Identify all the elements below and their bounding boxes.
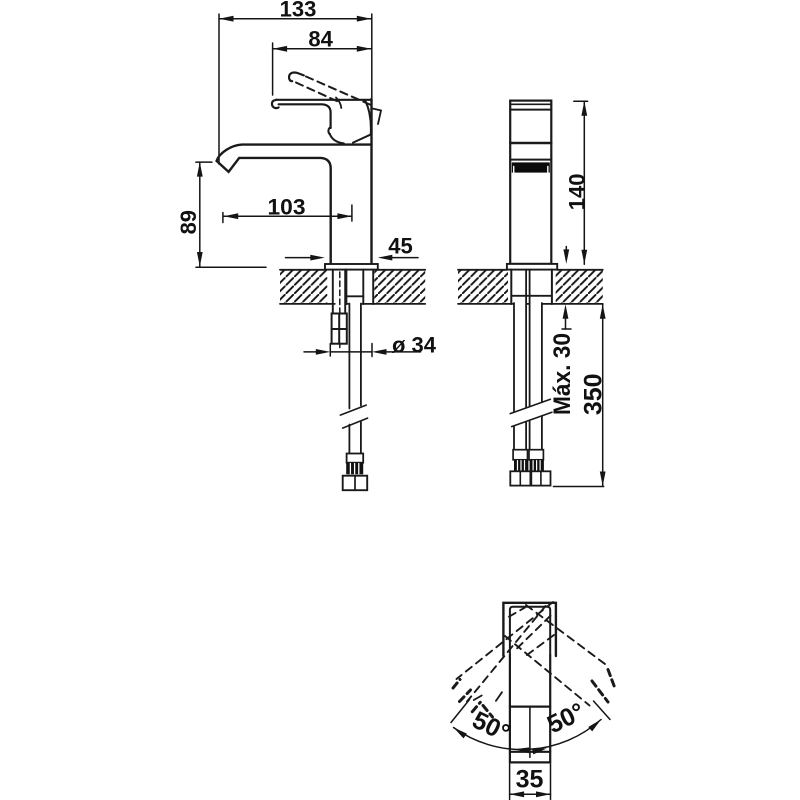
svg-text:ø 34: ø 34 bbox=[392, 332, 437, 357]
svg-text:35: 35 bbox=[516, 766, 544, 794]
svg-text:140: 140 bbox=[565, 174, 590, 211]
svg-text:Máx. 30: Máx. 30 bbox=[549, 333, 576, 415]
svg-text:103: 103 bbox=[268, 194, 306, 219]
svg-text:89: 89 bbox=[176, 210, 201, 234]
svg-text:45: 45 bbox=[388, 234, 412, 259]
svg-text:133: 133 bbox=[280, 0, 317, 22]
svg-text:84: 84 bbox=[308, 26, 333, 51]
svg-text:350: 350 bbox=[580, 373, 608, 415]
